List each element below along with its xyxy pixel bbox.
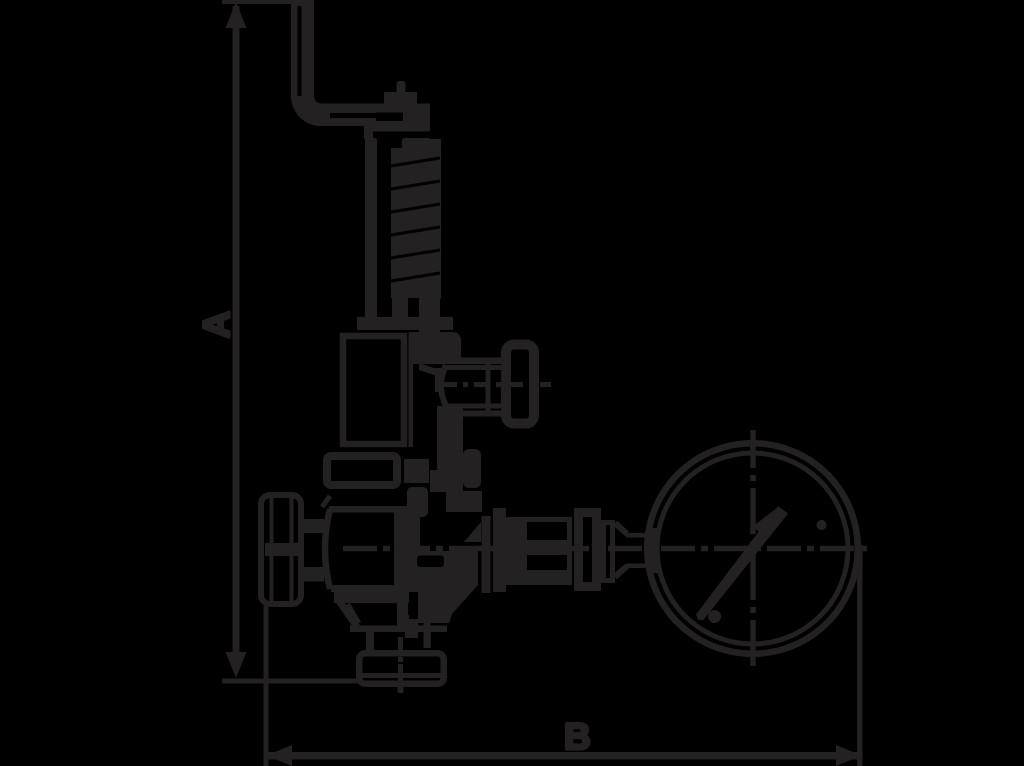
svg-text:B: B — [564, 716, 591, 757]
svg-text:A: A — [196, 311, 237, 338]
